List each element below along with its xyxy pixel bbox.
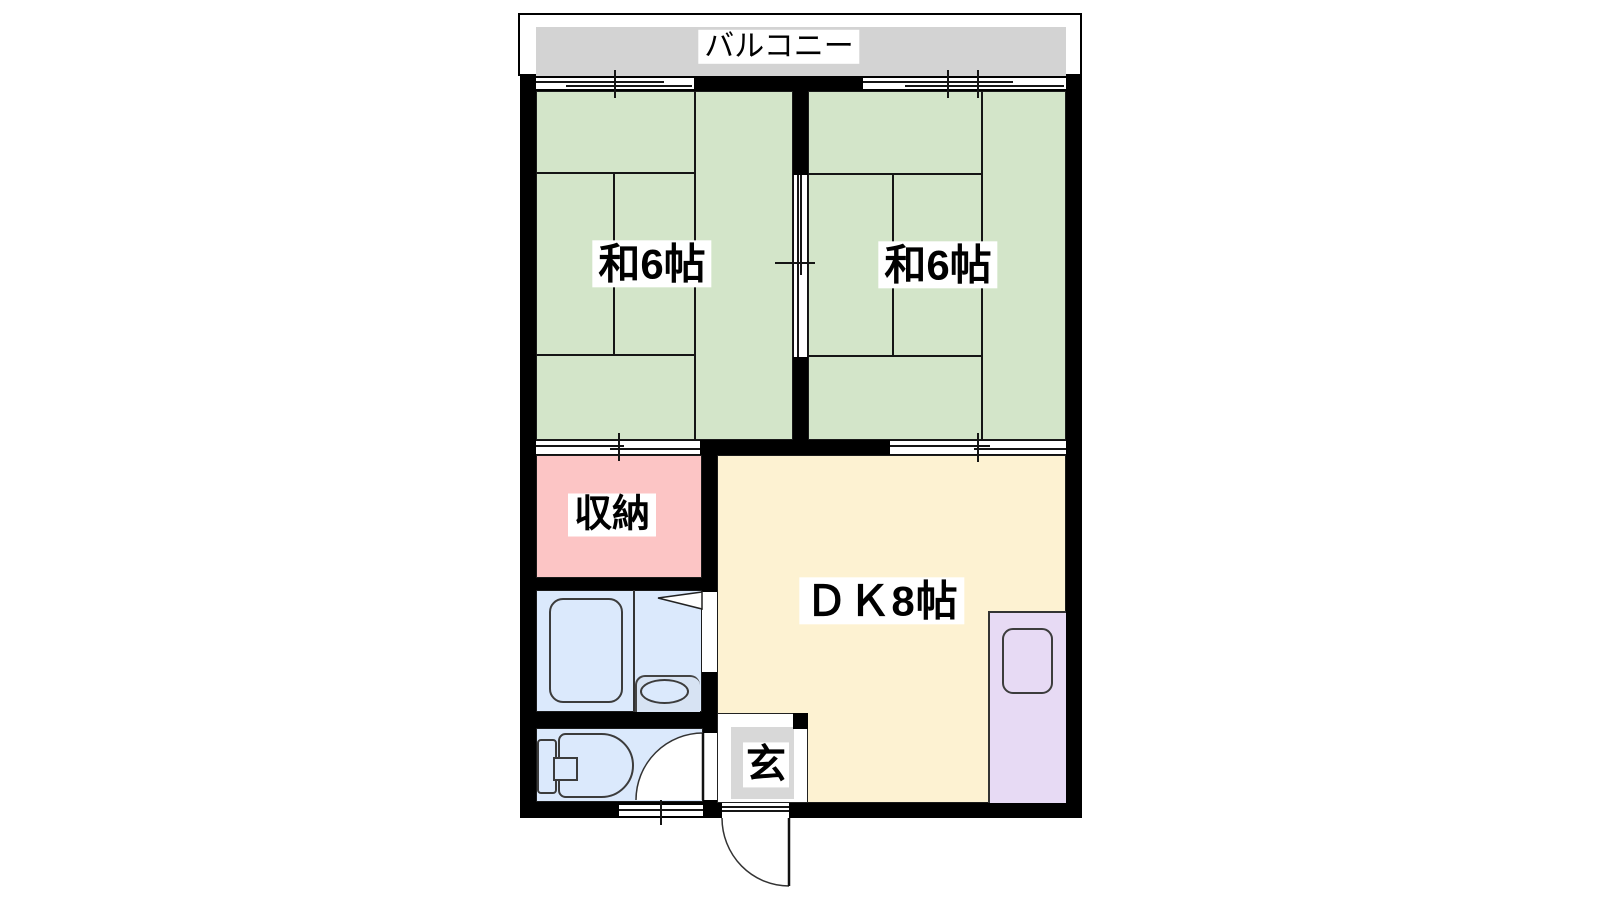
entrance-label: 玄	[743, 742, 789, 787]
balcony-label: バルコニー	[698, 30, 859, 64]
bathroom-door-opening	[702, 592, 717, 672]
threshold-line	[722, 806, 789, 808]
tatami-mat-line	[808, 355, 983, 357]
toilet-seat-hinge	[553, 757, 578, 781]
kitchen-sink	[1002, 628, 1053, 694]
japanese-room-left-label: 和6帖	[592, 240, 711, 287]
window-pane-line	[905, 85, 1064, 87]
window-center-tick	[614, 70, 616, 98]
dining-kitchen-label: ＤＫ8帖	[799, 577, 964, 624]
toilet-door-opening	[703, 733, 717, 800]
tatami-mat-line	[536, 172, 696, 174]
fusuma-center-tick	[618, 433, 620, 461]
sliding-window-right	[863, 76, 1066, 91]
entrance-door-arc	[722, 818, 789, 886]
fusuma-panel-line	[800, 175, 802, 275]
window-center-tick	[660, 797, 662, 825]
fusuma-panel-line	[797, 175, 799, 357]
fusuma-panel-line	[536, 445, 624, 447]
fusuma-center-tick	[775, 262, 815, 264]
washbasin	[640, 679, 689, 704]
fusuma-panel-line	[610, 448, 700, 450]
threshold-line	[722, 810, 789, 812]
japanese-room-right-label: 和6帖	[878, 241, 997, 288]
window-pane-line	[566, 85, 692, 87]
fusuma-center-tick	[977, 433, 979, 462]
storage-label: 収納	[568, 493, 656, 536]
window-center-tick	[977, 70, 979, 98]
entrance-wall-corner	[793, 713, 808, 729]
tatami-mat-line	[536, 354, 696, 356]
fusuma-panel-line	[890, 445, 990, 447]
window-pane-line	[863, 81, 1013, 83]
window-pane-line	[536, 81, 664, 83]
bathtub	[549, 598, 623, 703]
fusuma-panel-line	[974, 448, 1066, 450]
window-center-tick	[947, 70, 949, 98]
floorplan-page: バルコニー 和6帖 和6帖 収納 ＤＫ8帖 玄	[0, 0, 1600, 900]
tatami-mat-line	[808, 173, 983, 175]
